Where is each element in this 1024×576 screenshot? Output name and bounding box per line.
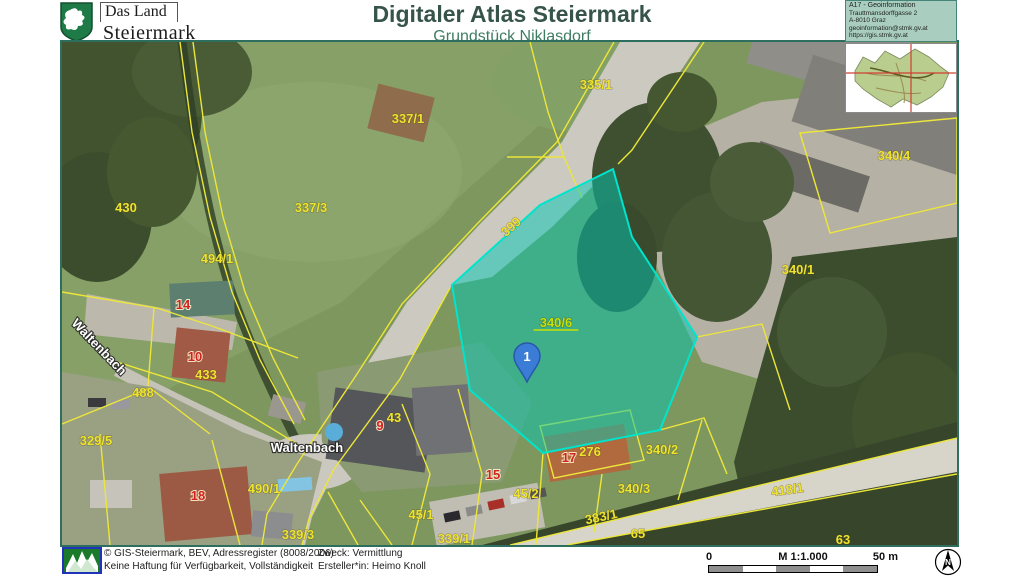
parcel-label-waltenbach: Waltenbach [271,440,344,455]
parcel-label-490-1: 490/1 [248,481,281,496]
parcel-label-329-5: 329/5 [80,433,113,448]
land-steiermark-logo: Das Land Steiermark [60,2,196,45]
copyright-line-2: Keine Haftung für Verfügbarkeit, Vollstä… [104,561,334,574]
parcel-label-45-1: 45/1 [408,507,433,522]
contact-website: https://gis.stmk.gv.at [849,32,953,39]
copyright-line-1: © GIS-Steiermark, BEV, Adressregister (8… [104,548,334,561]
north-arrow-label: N [945,558,951,567]
house-15 [412,384,473,456]
copyright-block: © GIS-Steiermark, BEV, Adressregister (8… [104,548,334,573]
parcel-label-340-6: 340/6 [540,315,573,330]
parcel-label-340-3: 340/3 [618,481,651,496]
map-export-page: { "header": { "logo": { "line1": "Das La… [0,0,1024,576]
purpose-block: Zweck: Vermittlung Ersteller*in: Heimo K… [318,548,426,573]
parcel-label-488: 488 [132,385,154,400]
parcel-label-63: 63 [836,532,850,545]
parcel-label-340-4: 340/4 [878,148,911,163]
address-line-1: Trauttmansdorffgasse 2 [849,10,953,17]
north-arrow-icon: N [933,548,963,576]
parcel-label-10: 10 [188,349,202,364]
parcel-label-339-3: 339/3 [282,527,315,542]
map-canvas: 335/1337/1337/3430494/11410433488Waltenb… [62,42,957,545]
parcel-label-9: 9 [376,418,383,433]
parcel-label-339-1: 339/1 [438,531,471,545]
scale-end-label: 50 m [873,551,898,563]
parcel-label-430: 430 [115,200,137,215]
contact-email: geoinformation@stmk.gv.at [849,25,953,32]
parcel-label-337-1: 337/1 [392,111,425,126]
department-name: A17 - Geoinformation [849,2,953,10]
logo-text-das-land: Das Land [100,2,178,22]
marker-pin-number: 1 [523,349,530,364]
creator-line: Ersteller*in: Heimo Knoll [318,561,426,574]
purpose-line: Zweck: Vermittlung [318,548,426,561]
parcel-label-15: 15 [486,467,500,482]
styria-overview-map [845,43,957,113]
parcel-label-433: 433 [195,367,217,382]
scale-bar [708,565,878,573]
parcel-label-340-1: 340/1 [782,262,815,277]
parcel-label-65: 65 [631,526,645,541]
parcel-label-14: 14 [176,297,191,312]
contact-info-box: A17 - Geoinformation Trauttmansdorffgass… [845,0,957,42]
parcel-label-335-1: 335/1 [580,77,613,92]
steiermark-shield-icon [60,2,93,42]
page-title: Digitaler Atlas Steiermark [220,1,804,28]
scale-labels: 0 M 1:1.000 50 m [706,551,898,564]
parcel-label-17: 17 [562,450,576,465]
gis-steiermark-logo [62,547,102,574]
parcel-label-494-1: 494/1 [201,251,234,266]
parcel-label-276: 276 [579,444,601,459]
address-line-2: A-8010 Graz [849,17,953,24]
parcel-label-18: 18 [191,488,205,503]
parcel-label-43: 43 [387,410,401,425]
scale-ratio-label: M 1:1.000 [748,551,858,563]
scale-start-label: 0 [706,551,712,563]
parcel-label-45-2: 45/2 [513,486,538,501]
parcel-label-337-3: 337/3 [295,200,328,215]
map-frame: 335/1337/1337/3430494/11410433488Waltenb… [60,40,959,547]
styria-outline [846,44,956,112]
house-18 [159,466,253,541]
parcel-label-340-2: 340/2 [646,442,679,457]
